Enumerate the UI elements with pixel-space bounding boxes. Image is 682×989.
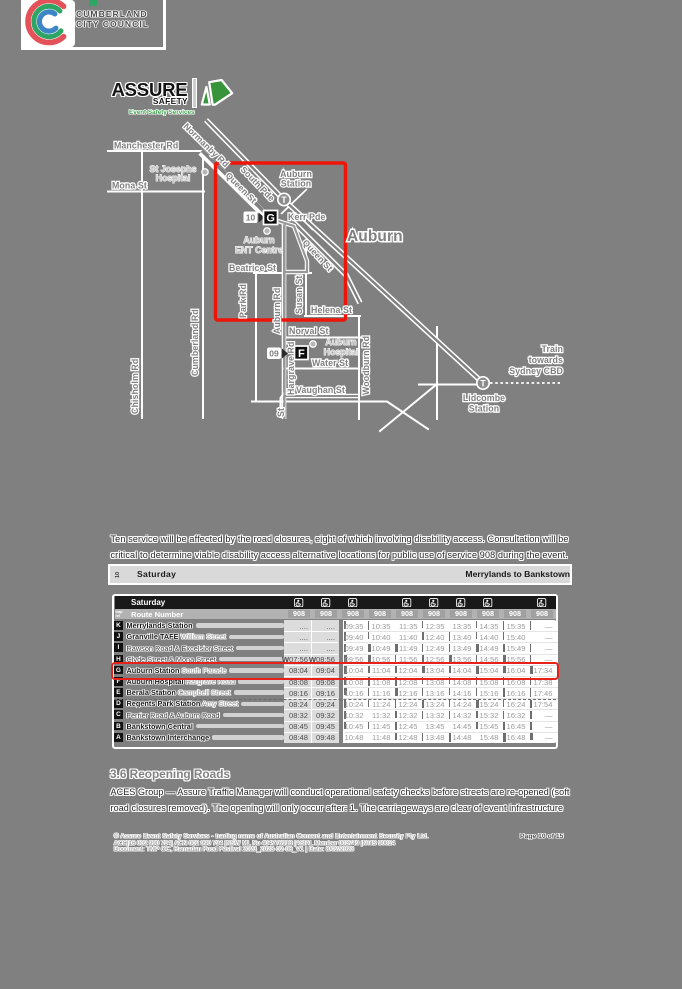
svg-text:Hospital: Hospital bbox=[156, 173, 191, 183]
svg-text:Cumberland Rd: Cumberland Rd bbox=[190, 309, 200, 376]
svg-text:Train: Train bbox=[541, 344, 563, 354]
svg-text:towards: towards bbox=[529, 355, 563, 365]
svg-text:Kerr Pde: Kerr Pde bbox=[288, 212, 325, 222]
svg-text:Chisholm Rd: Chisholm Rd bbox=[130, 359, 140, 414]
svg-text:10: 10 bbox=[246, 213, 256, 223]
svg-text:Vaughan St: Vaughan St bbox=[296, 385, 345, 395]
svg-text:Park Rd: Park Rd bbox=[238, 284, 248, 318]
svg-text:Auburn: Auburn bbox=[325, 337, 356, 347]
svg-text:T: T bbox=[480, 379, 486, 389]
svg-text:Norval St: Norval St bbox=[289, 326, 329, 336]
svg-text:09: 09 bbox=[269, 349, 279, 359]
svg-text:F: F bbox=[298, 348, 305, 360]
svg-text:Station: Station bbox=[281, 179, 312, 189]
svg-text:Woodburn Rd: Woodburn Rd bbox=[361, 336, 371, 395]
svg-text:Water St: Water St bbox=[312, 358, 348, 368]
svg-text:Lidcombe: Lidcombe bbox=[463, 393, 505, 403]
svg-text:T: T bbox=[281, 195, 287, 205]
svg-text:Station: Station bbox=[469, 404, 500, 414]
svg-text:Auburn: Auburn bbox=[347, 228, 403, 245]
svg-text:Beatrice St: Beatrice St bbox=[229, 263, 276, 273]
svg-text:ENT Centre: ENT Centre bbox=[235, 245, 283, 255]
svg-text:Sydney CBD: Sydney CBD bbox=[509, 366, 563, 376]
svg-text:G: G bbox=[266, 213, 275, 225]
svg-text:Auburn: Auburn bbox=[280, 169, 312, 179]
svg-text:Hospital: Hospital bbox=[324, 347, 359, 357]
svg-text:Susan St: Susan St bbox=[294, 276, 304, 314]
svg-text:St: St bbox=[276, 408, 286, 417]
svg-text:Auburn Rd: Auburn Rd bbox=[272, 288, 282, 334]
svg-text:Helena St: Helena St bbox=[311, 305, 352, 315]
svg-text:Manchester Rd: Manchester Rd bbox=[114, 141, 178, 151]
svg-text:Mona St: Mona St bbox=[112, 181, 147, 191]
svg-text:Auburn: Auburn bbox=[243, 235, 274, 245]
